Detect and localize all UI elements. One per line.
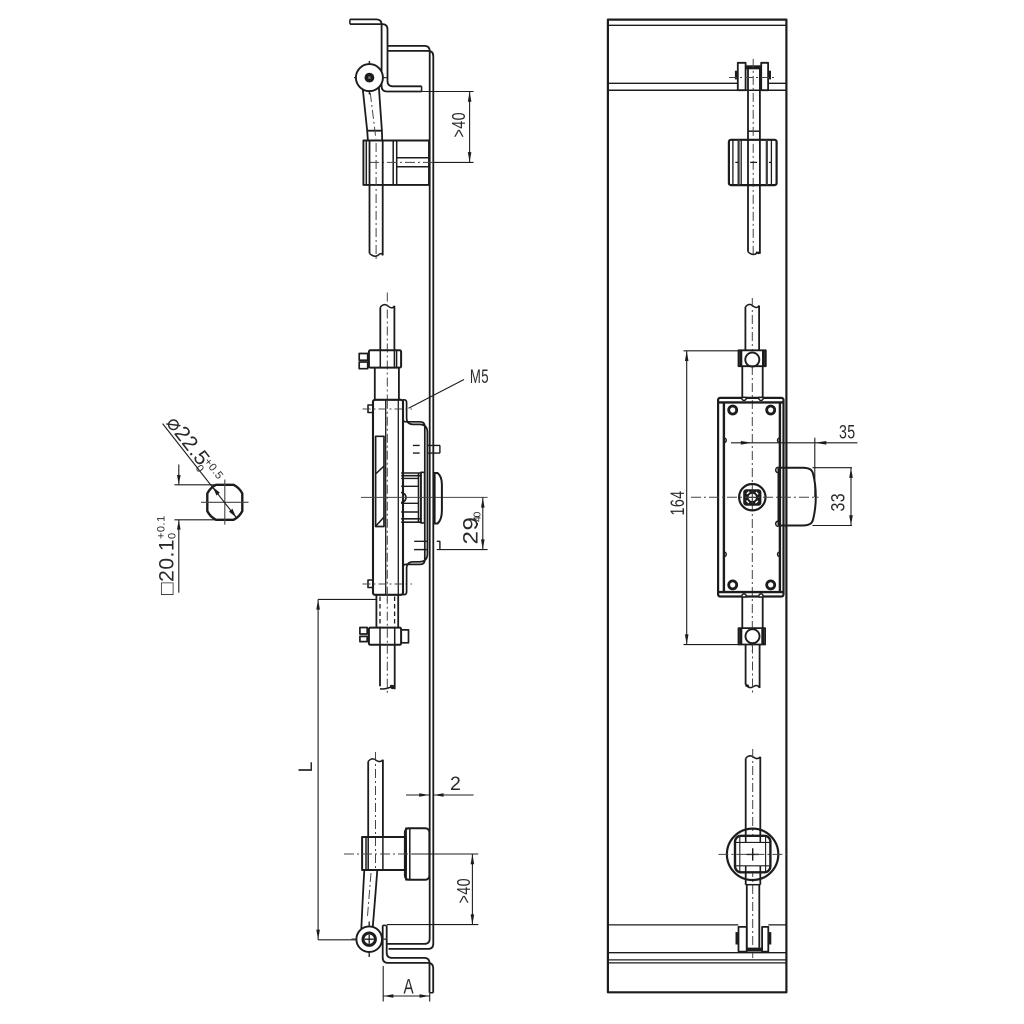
svg-text:164: 164 <box>668 491 689 516</box>
svg-text:M5: M5 <box>470 366 489 388</box>
svg-text:A: A <box>404 976 415 999</box>
svg-text:2: 2 <box>450 773 461 795</box>
svg-text:>40: >40 <box>454 878 474 904</box>
svg-text:33: 33 <box>829 493 850 512</box>
svg-text:35: 35 <box>839 423 856 444</box>
svg-text:L: L <box>295 761 317 772</box>
svg-text:>40: >40 <box>449 112 469 138</box>
svg-text:□20.1: □20.1 <box>156 539 179 595</box>
svg-text:0: 0 <box>167 532 179 539</box>
svg-text:-4: -4 <box>472 516 484 526</box>
